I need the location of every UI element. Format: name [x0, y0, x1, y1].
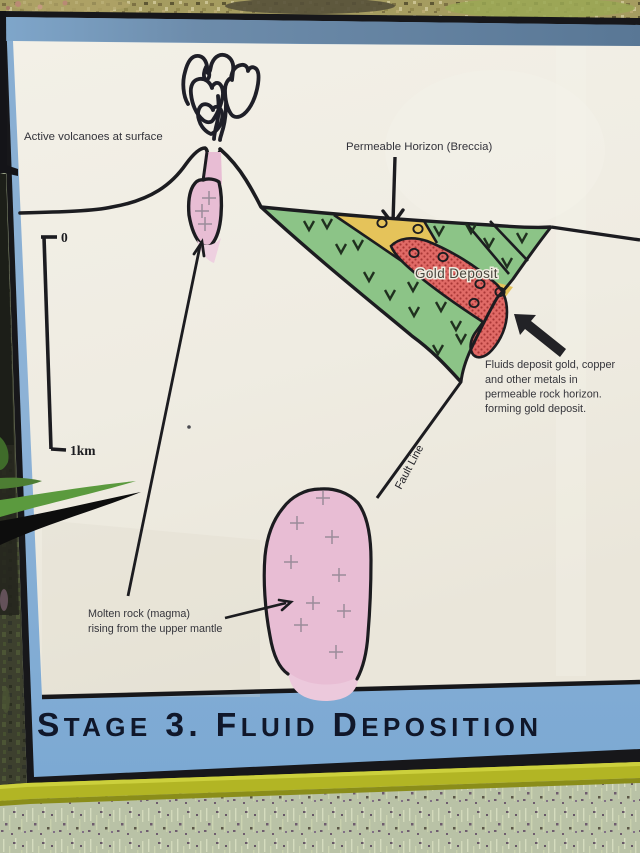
- svg-text:Fluids deposit gold, copper: Fluids deposit gold, copper: [485, 359, 616, 371]
- svg-text:forming gold deposit.: forming gold deposit.: [485, 403, 586, 415]
- svg-text:Gold Deposit: Gold Deposit: [415, 266, 498, 281]
- svg-text:and other metals in: and other metals in: [485, 374, 578, 386]
- svg-text:0: 0: [61, 230, 68, 245]
- svg-text:Active volcanoes at surface: Active volcanoes at surface: [24, 131, 163, 143]
- svg-text:Permeable Horizon (Breccia): Permeable Horizon (Breccia): [346, 141, 492, 153]
- svg-text:permeable rock horizon.: permeable rock horizon.: [485, 389, 602, 401]
- svg-text:rising from the upper mantle: rising from the upper mantle: [88, 623, 222, 635]
- svg-text:1km: 1km: [70, 443, 96, 458]
- svg-text:Molten rock (magma): Molten rock (magma): [88, 608, 190, 620]
- svg-text:STAGE 3. FLUID DEPOSITION: STAGE 3. FLUID DEPOSITION: [37, 707, 542, 744]
